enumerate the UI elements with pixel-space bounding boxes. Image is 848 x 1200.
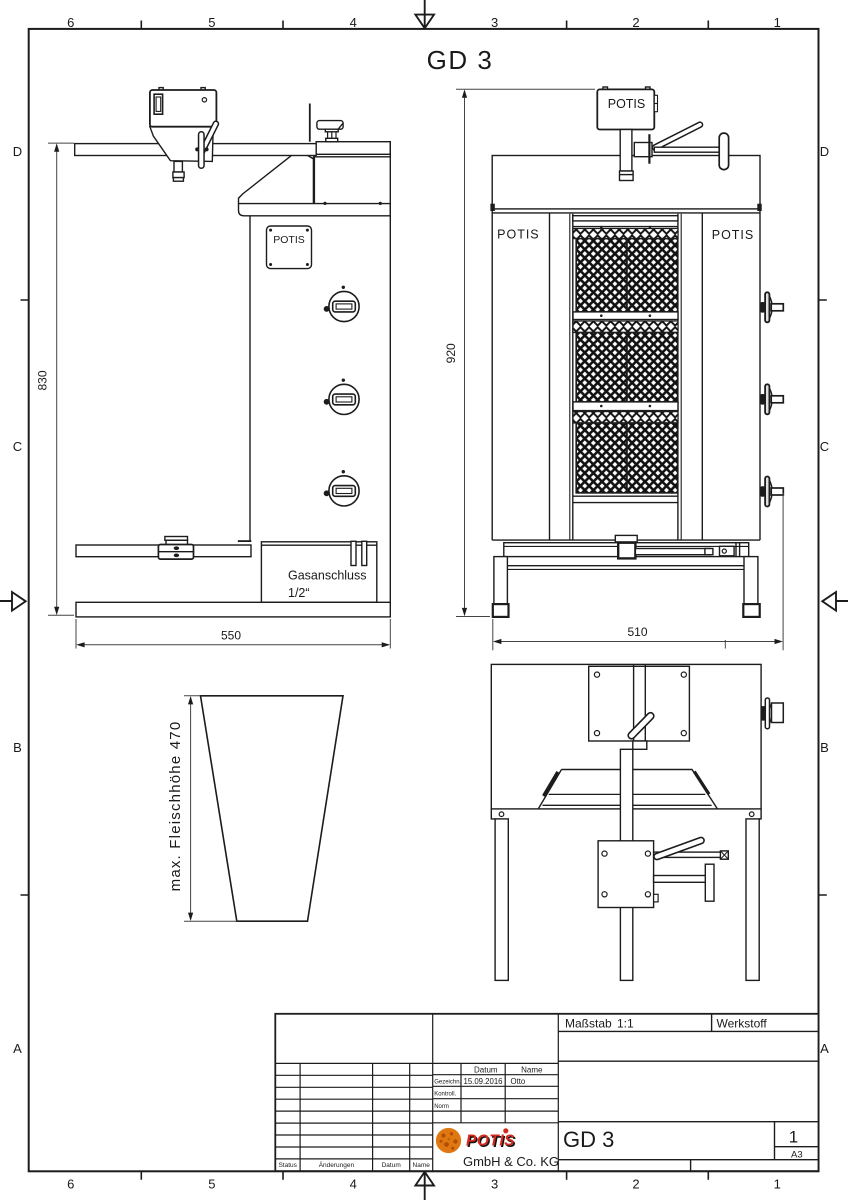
- svg-text:POTIS: POTIS: [497, 228, 540, 242]
- svg-text:4: 4: [350, 1177, 357, 1192]
- svg-text:POTIS: POTIS: [273, 234, 305, 246]
- svg-text:2: 2: [632, 15, 639, 30]
- svg-text:Name: Name: [413, 1162, 431, 1169]
- svg-text:B: B: [820, 740, 829, 755]
- svg-text:5: 5: [208, 1177, 215, 1192]
- svg-text:GmbH & Co. KG: GmbH & Co. KG: [463, 1154, 559, 1169]
- svg-text:830: 830: [36, 370, 50, 390]
- svg-text:550: 550: [221, 629, 241, 643]
- svg-text:920: 920: [444, 343, 458, 363]
- svg-text:POTIS: POTIS: [466, 1133, 515, 1150]
- svg-text:1: 1: [774, 1177, 781, 1192]
- svg-text:2: 2: [632, 1177, 639, 1192]
- svg-text:15.09.2016: 15.09.2016: [464, 1077, 503, 1086]
- svg-text:Status: Status: [278, 1162, 297, 1169]
- svg-text:Datum: Datum: [474, 1065, 498, 1074]
- svg-text:Kontroll.: Kontroll.: [434, 1091, 456, 1097]
- svg-text:Norm: Norm: [434, 1104, 449, 1110]
- svg-text:1:1: 1:1: [617, 1017, 634, 1031]
- svg-text:A: A: [13, 1041, 22, 1056]
- svg-text:GD 3: GD 3: [427, 45, 494, 75]
- svg-text:C: C: [820, 439, 829, 454]
- svg-text:A3: A3: [791, 1150, 803, 1161]
- svg-text:Name: Name: [521, 1065, 543, 1074]
- svg-text:6: 6: [67, 1177, 74, 1192]
- svg-text:5: 5: [208, 15, 215, 30]
- svg-text:1/2“: 1/2“: [288, 586, 310, 600]
- svg-text:1: 1: [789, 1128, 798, 1147]
- svg-text:3: 3: [491, 1177, 498, 1192]
- svg-text:Gasanschluss: Gasanschluss: [288, 569, 367, 583]
- svg-text:4: 4: [350, 15, 357, 30]
- svg-text:Otto: Otto: [511, 1077, 526, 1086]
- svg-text:Maßstab: Maßstab: [565, 1017, 612, 1031]
- svg-text:510: 510: [627, 625, 647, 639]
- svg-text:Gezeichn.: Gezeichn.: [434, 1079, 461, 1085]
- svg-text:6: 6: [67, 15, 74, 30]
- svg-text:Änderungen: Änderungen: [319, 1161, 355, 1169]
- svg-text:D: D: [13, 144, 22, 159]
- svg-text:1: 1: [774, 15, 781, 30]
- svg-text:POTIS: POTIS: [712, 228, 755, 242]
- svg-text:A: A: [820, 1041, 829, 1056]
- svg-text:Werkstoff: Werkstoff: [717, 1017, 768, 1031]
- svg-text:C: C: [13, 439, 22, 454]
- svg-text:3: 3: [491, 15, 498, 30]
- svg-text:B: B: [13, 740, 22, 755]
- svg-text:Datum: Datum: [382, 1162, 401, 1169]
- svg-text:D: D: [820, 144, 829, 159]
- svg-text:POTIS: POTIS: [608, 97, 646, 111]
- svg-text:GD 3: GD 3: [563, 1127, 614, 1152]
- svg-text:max. Fleischhöhe 470: max. Fleischhöhe 470: [167, 721, 184, 892]
